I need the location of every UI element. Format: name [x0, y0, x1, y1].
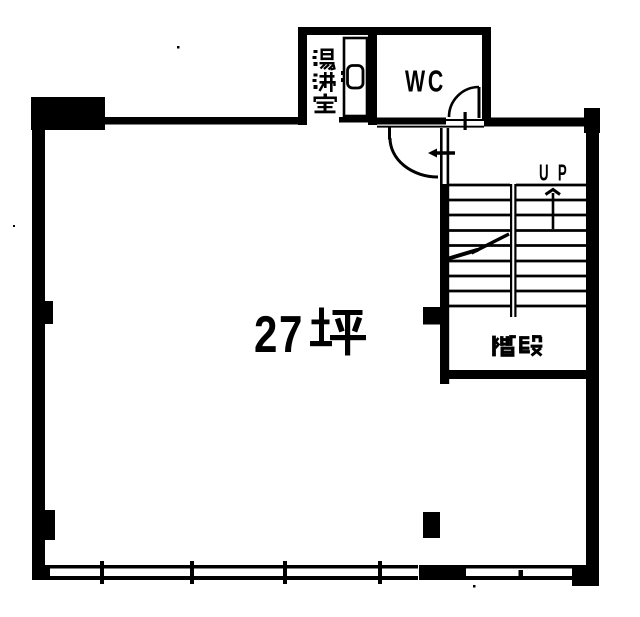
svg-text:27: 27	[254, 306, 304, 364]
svg-text:WC: WC	[405, 64, 446, 99]
svg-text:UP: UP	[539, 160, 576, 186]
